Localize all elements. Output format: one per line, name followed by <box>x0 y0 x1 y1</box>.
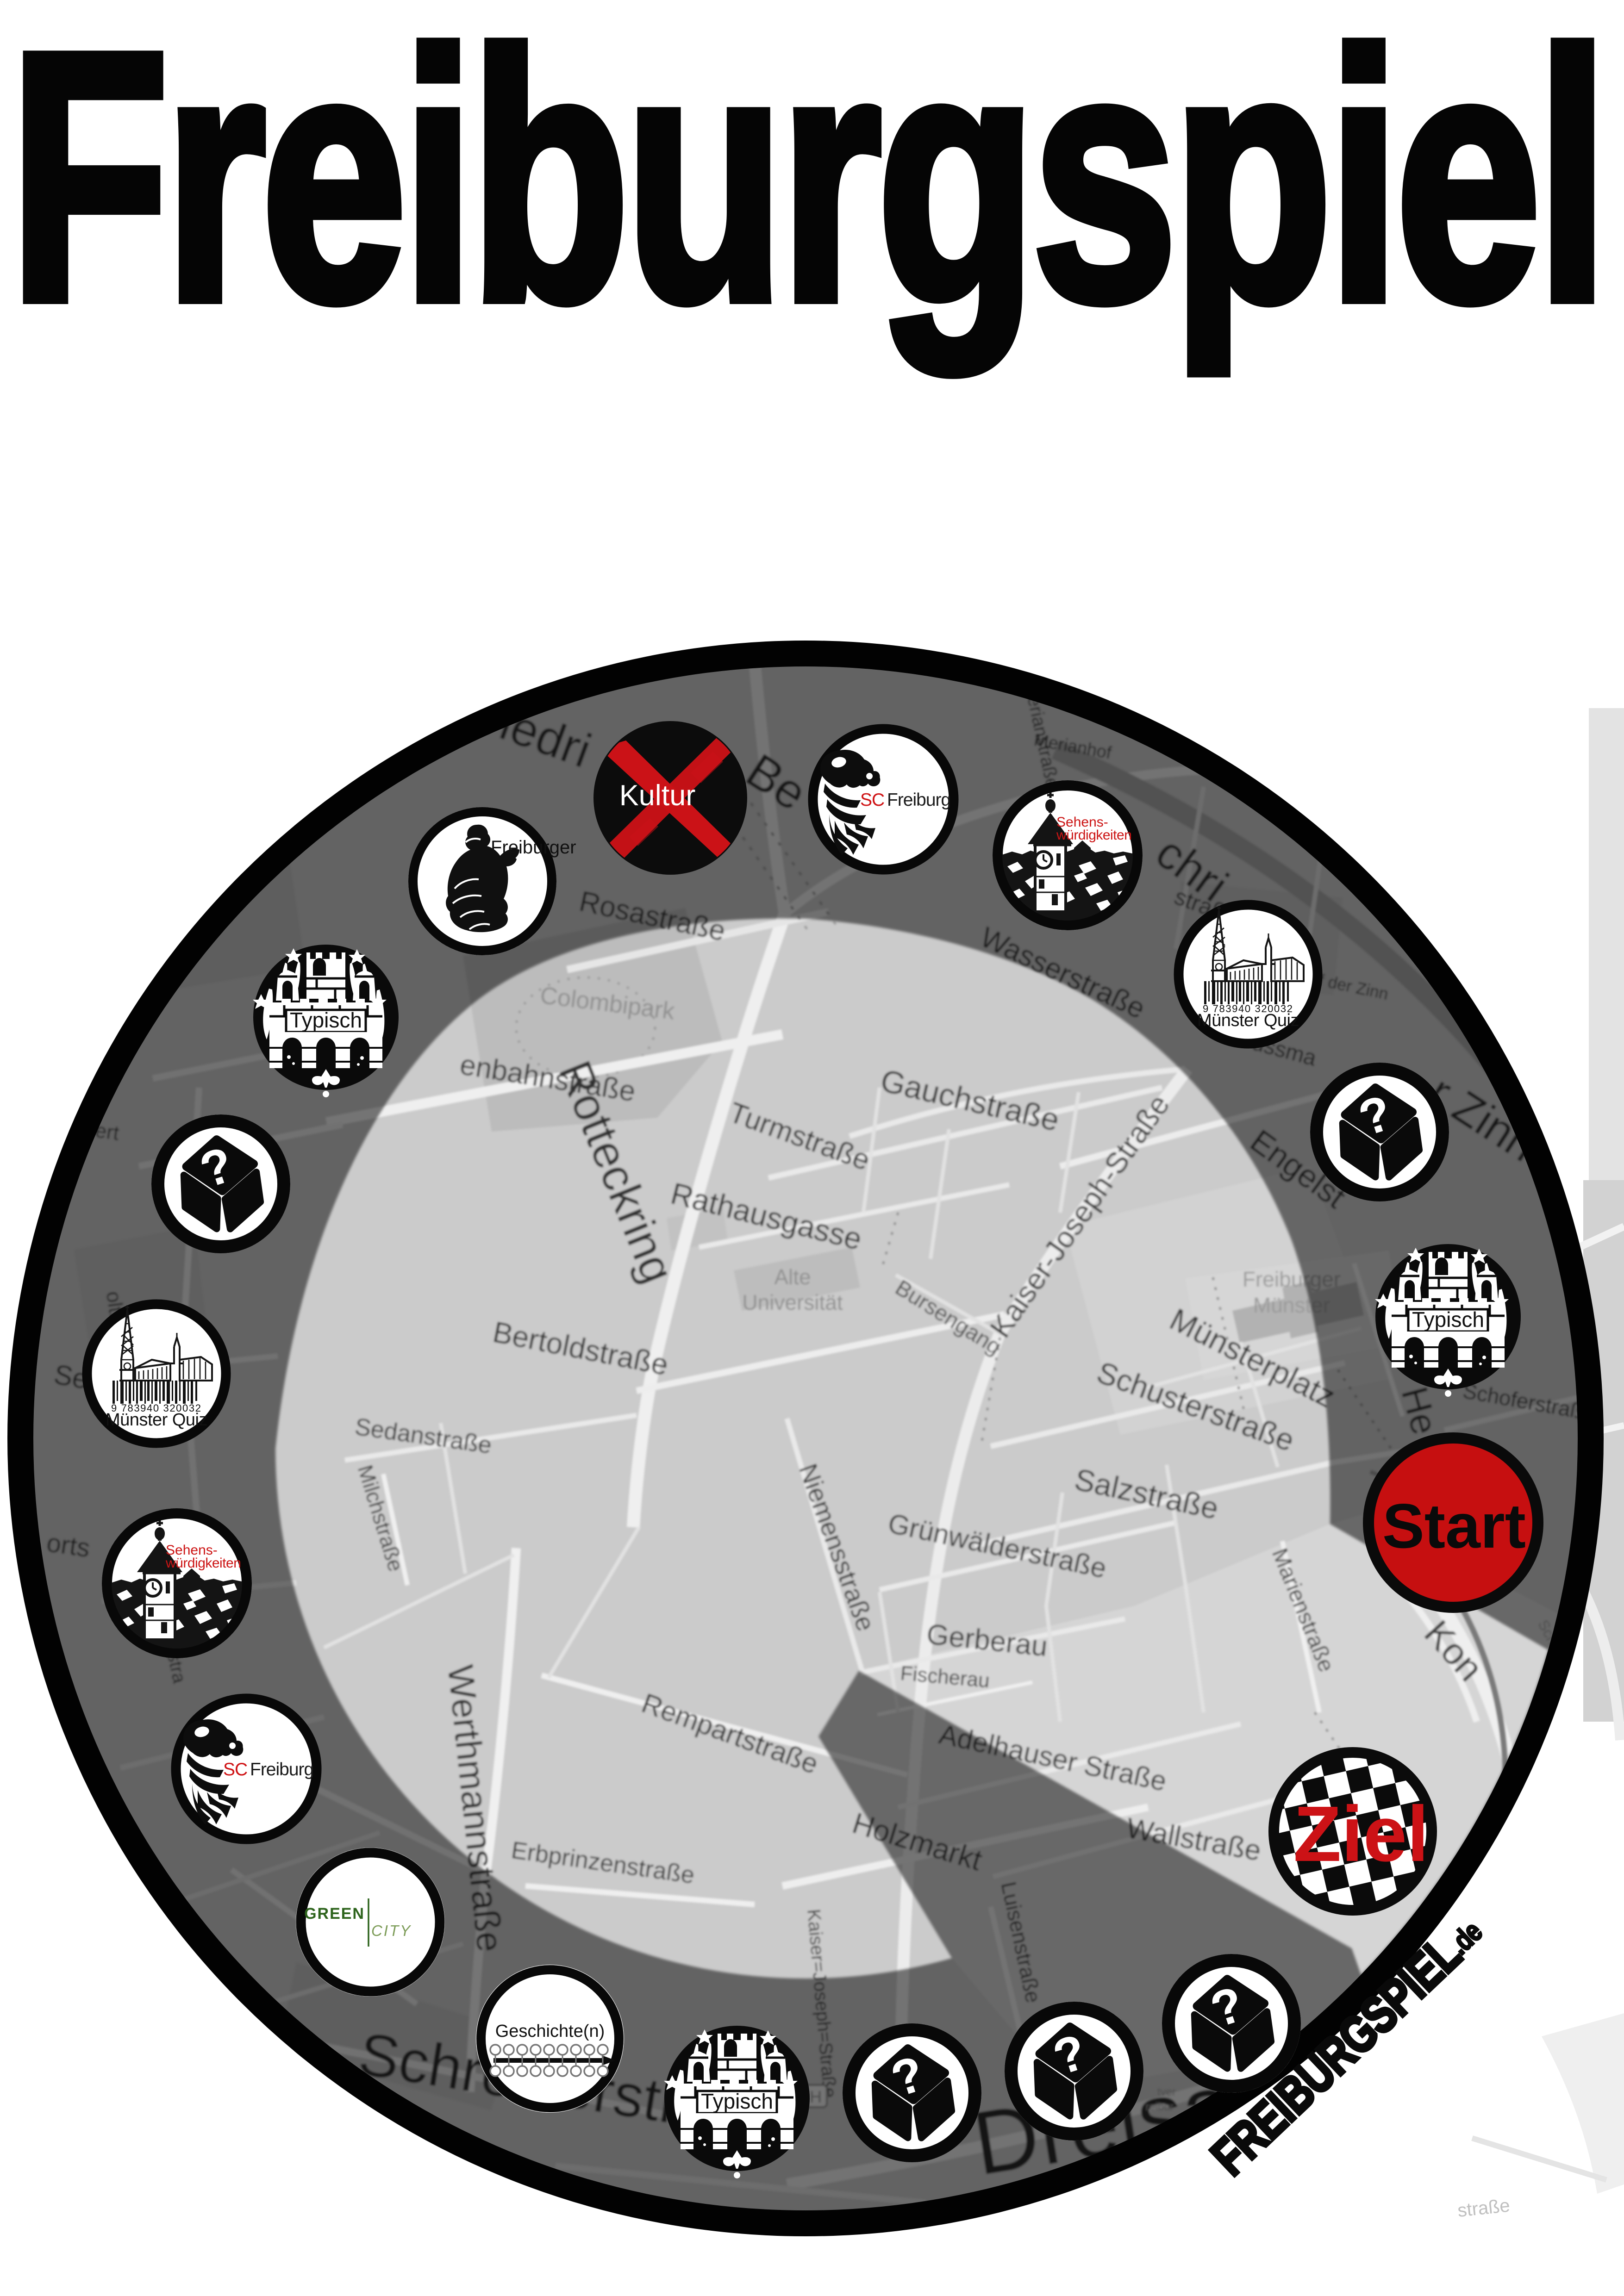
svg-text:Universität: Universität <box>742 1290 843 1314</box>
svg-text:GREEN: GREEN <box>304 1905 365 1923</box>
svg-text:Geschichte(n): Geschichte(n) <box>495 2022 605 2041</box>
svg-text:Freiburgspiel: Freiburgspiel <box>9 0 1604 376</box>
svg-text:CITY: CITY <box>371 1922 412 1939</box>
svg-text:Ziel: Ziel <box>1293 1790 1429 1878</box>
svg-text:Freiburger: Freiburger <box>491 837 576 858</box>
svg-text:Alte: Alte <box>774 1265 811 1289</box>
svg-text:Kultur: Kultur <box>619 779 696 812</box>
svg-text:Start: Start <box>1382 1491 1526 1561</box>
